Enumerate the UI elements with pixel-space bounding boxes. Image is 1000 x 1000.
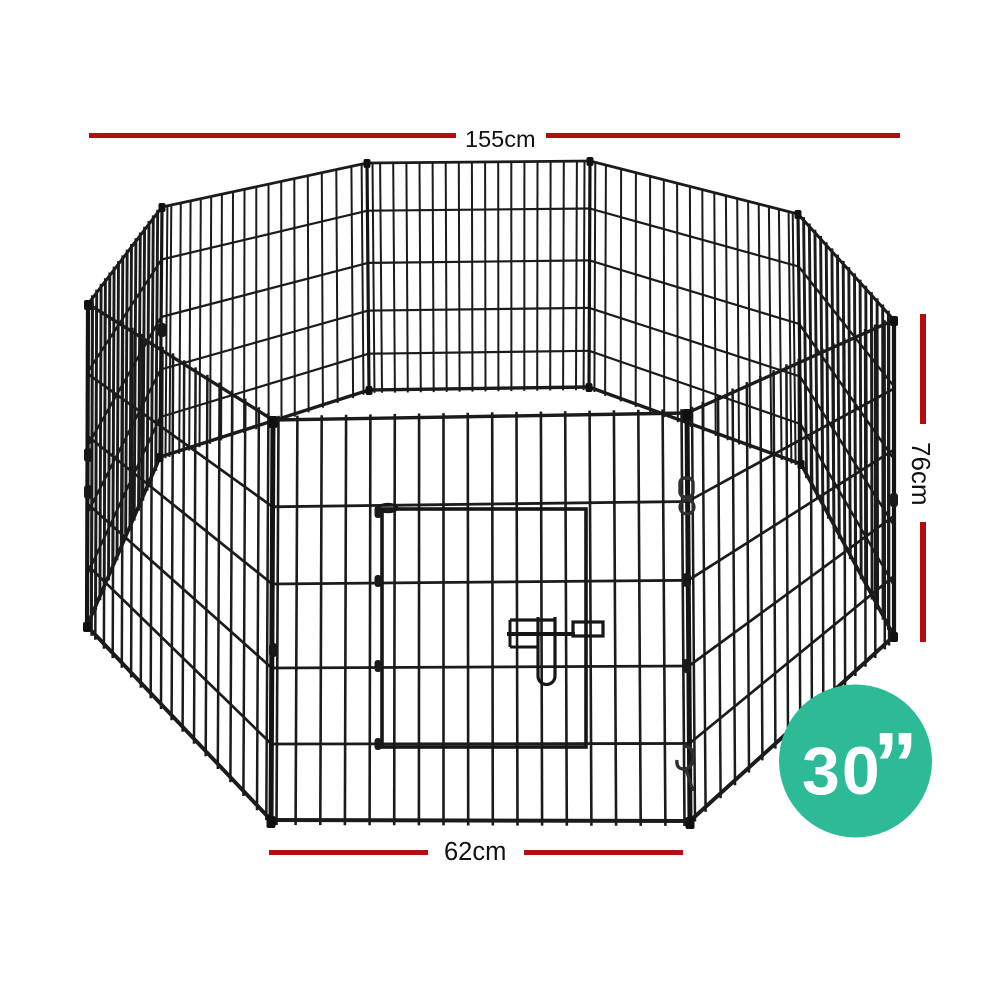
svg-text:30: 30 [802,733,882,809]
svg-text:”: ” [873,715,918,815]
